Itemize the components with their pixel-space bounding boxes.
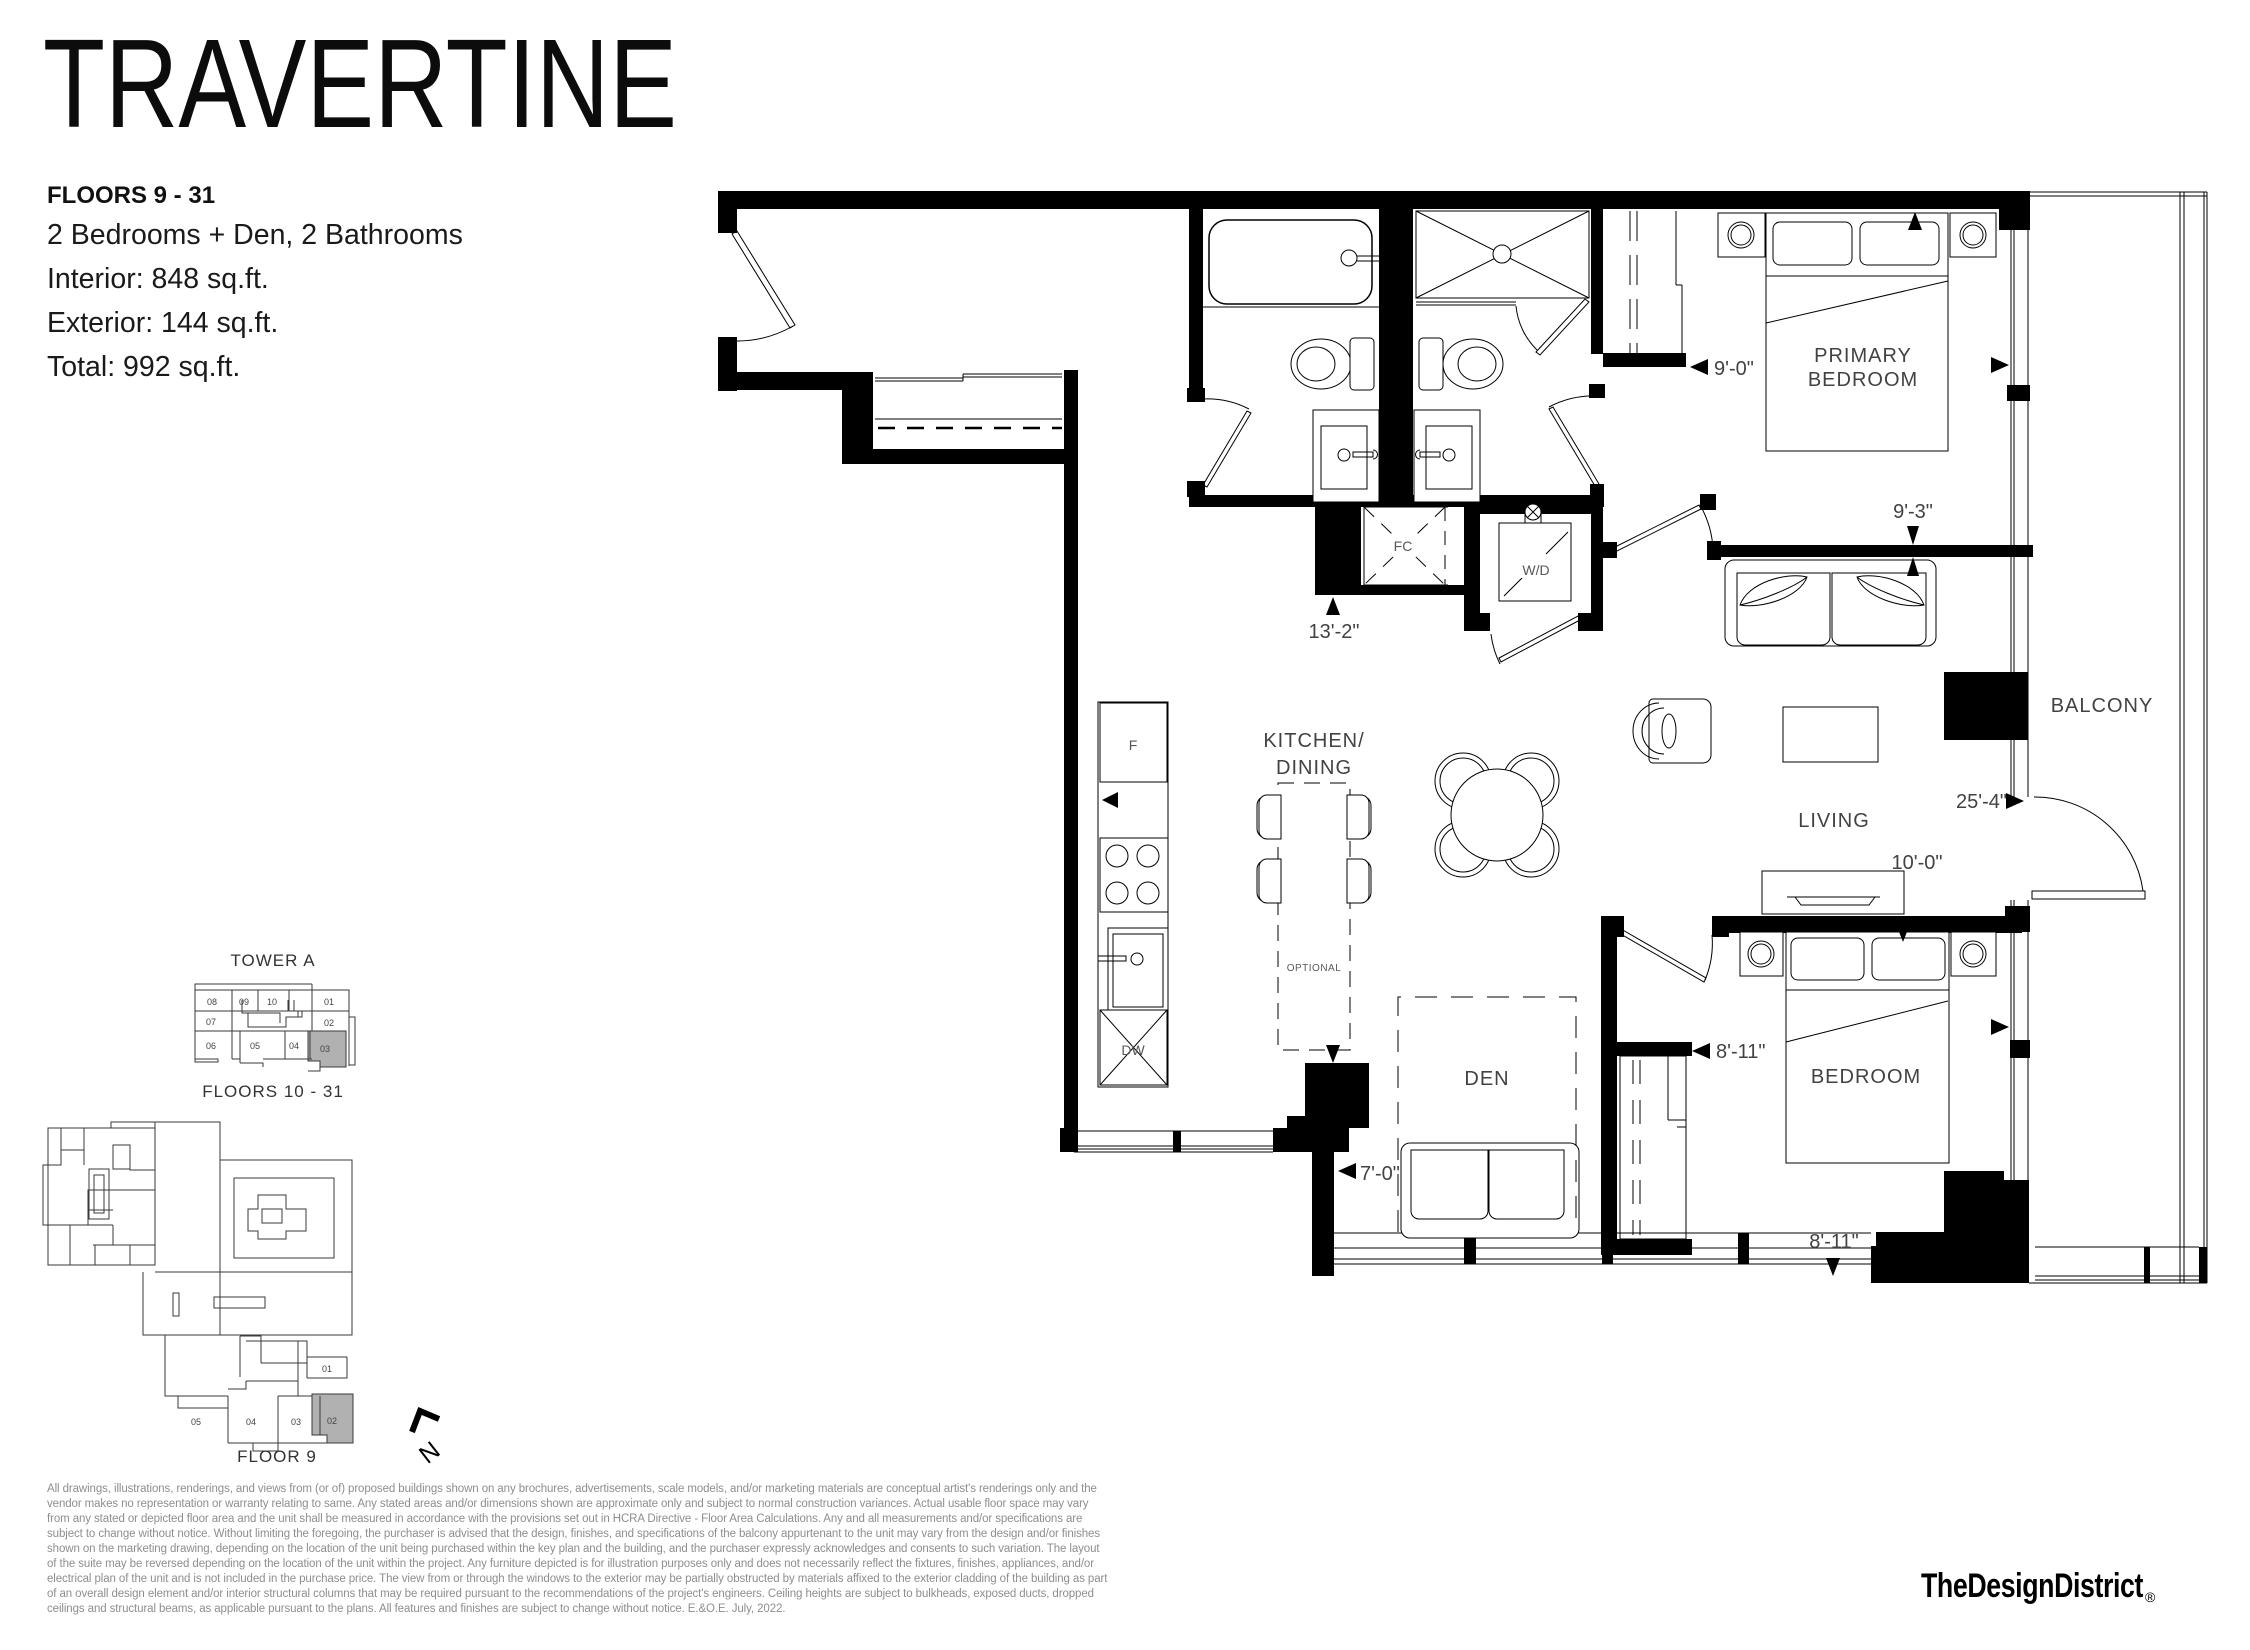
svg-text:05: 05 [191,1417,201,1427]
svg-text:Total: 992 sq.ft.: Total: 992 sq.ft. [47,351,240,383]
svg-text:BALCONY: BALCONY [2051,695,2154,717]
svg-text:02: 02 [324,1018,334,1028]
svg-text:8'-11": 8'-11" [1809,1231,1858,1253]
svg-text:9'-0": 9'-0" [1714,358,1754,380]
svg-text:shown on the marketing drawing: shown on the marketing drawing, dependin… [47,1543,1100,1555]
svg-text:05: 05 [250,1041,260,1051]
svg-text:DINING: DINING [1276,757,1352,779]
svg-text:vendor makes no representation: vendor makes no representation or warran… [47,1498,1089,1510]
svg-text:KITCHEN/: KITCHEN/ [1263,730,1364,752]
svg-text:FLOORS 10 - 31: FLOORS 10 - 31 [202,1082,344,1101]
svg-text:03: 03 [291,1417,301,1427]
svg-text:FLOORS 9 - 31: FLOORS 9 - 31 [47,182,215,209]
svg-text:BEDROOM: BEDROOM [1808,369,1918,391]
svg-text:TRAVERTINE: TRAVERTINE [43,13,677,154]
svg-text:2 Bedrooms + Den, 2 Bathrooms: 2 Bedrooms + Den, 2 Bathrooms [47,219,463,251]
svg-text:04: 04 [246,1417,256,1427]
svg-text:DEN: DEN [1464,1068,1509,1090]
svg-text:02: 02 [327,1416,337,1426]
svg-text:electrical plan of the unit an: electrical plan of the unit and is not i… [47,1573,1108,1585]
svg-text:TOWER A: TOWER A [230,951,315,970]
svg-text:of an overall design element a: of an overall design element and/or inte… [47,1588,1094,1600]
svg-text:10'-0": 10'-0" [1892,852,1943,874]
svg-text:ceilings and structural beams,: ceilings and structural beams, as applic… [47,1603,785,1615]
svg-text:LIVING: LIVING [1798,810,1870,832]
svg-text:01: 01 [322,1364,332,1374]
svg-text:8'-11": 8'-11" [1716,1041,1765,1063]
svg-text:7'-0": 7'-0" [1360,1163,1400,1185]
svg-text:All drawings, illustrations, r: All drawings, illustrations, renderings,… [47,1483,1097,1495]
svg-text:TheDesignDistrict: TheDesignDistrict [1921,1567,2143,1605]
svg-text:FC: FC [1394,538,1413,554]
svg-text:03: 03 [320,1044,330,1054]
svg-text:PRIMARY: PRIMARY [1814,345,1912,367]
svg-text:9'-3": 9'-3" [1893,501,1933,523]
svg-text:13'-2": 13'-2" [1309,621,1360,643]
svg-text:25'-4": 25'-4" [1956,791,2007,813]
svg-text:DW: DW [1121,1042,1145,1058]
svg-text:01: 01 [324,997,334,1007]
svg-text:®: ® [2145,1589,2156,1605]
svg-text:FLOOR 9: FLOOR 9 [237,1447,317,1466]
svg-text:04: 04 [289,1041,299,1051]
svg-text:Interior: 848 sq.ft.: Interior: 848 sq.ft. [47,263,269,295]
svg-text:BEDROOM: BEDROOM [1811,1066,1921,1088]
svg-text:09: 09 [239,997,249,1007]
svg-text:from any stated or depicted fl: from any stated or depicted floor area a… [47,1513,1082,1525]
svg-text:subject to change without noti: subject to change without notice. Withou… [47,1528,1100,1540]
svg-text:08: 08 [207,997,217,1007]
svg-text:F: F [1129,737,1138,753]
svg-text:10: 10 [267,997,277,1007]
svg-text:07: 07 [206,1017,216,1027]
svg-text:Exterior: 144 sq.ft.: Exterior: 144 sq.ft. [47,307,278,339]
svg-text:06: 06 [206,1041,216,1051]
svg-text:W/D: W/D [1522,562,1549,578]
svg-text:OPTIONAL: OPTIONAL [1287,963,1342,974]
svg-text:of the suite may be reversed d: of the suite may be reversed depending o… [47,1558,1094,1570]
